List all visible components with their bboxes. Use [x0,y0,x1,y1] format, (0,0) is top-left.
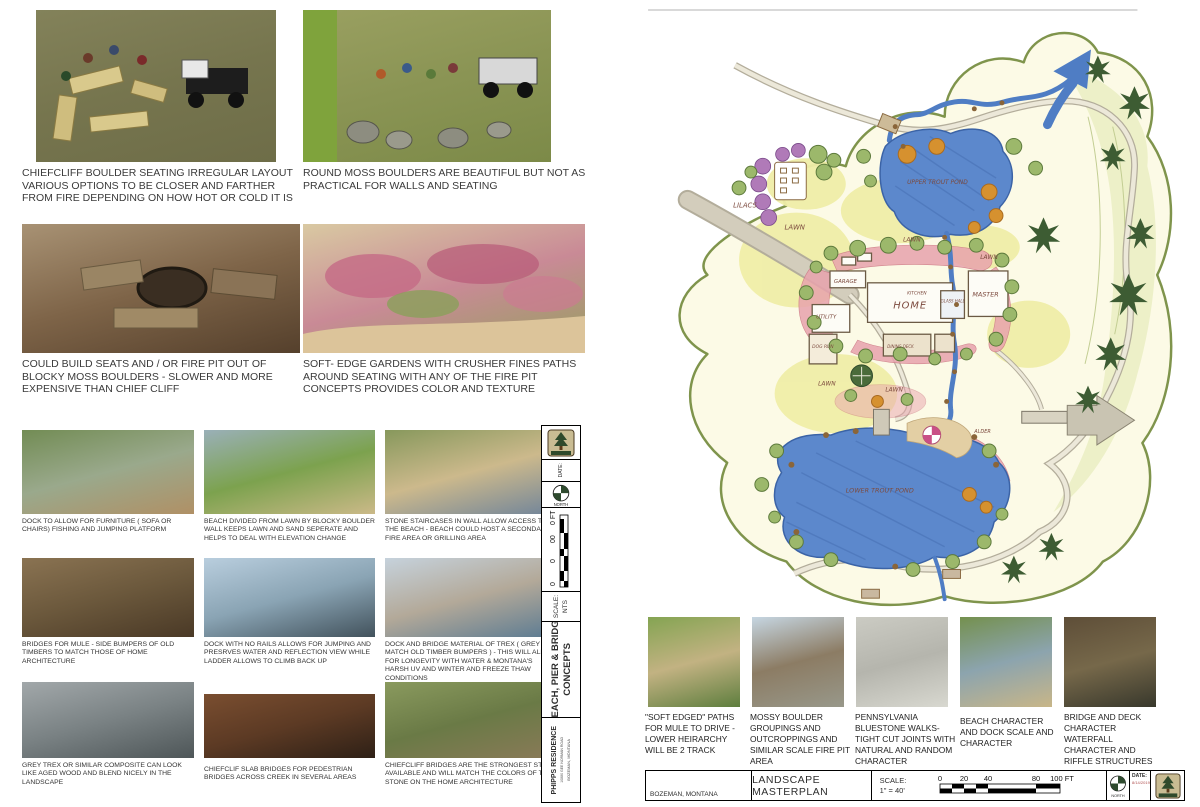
caption-beach-lawn-wall: BEACH DIVIDED FROM LAWN BY BLOCKY BOULDE… [204,518,375,543]
caption-trex-dock: DOCK AND BRIDGE MATERIAL OF TREX ( GREY … [385,641,557,683]
caption-dock-furniture: DOCK TO ALLOW FOR FURNITURE ( SOFA OR CH… [22,518,194,535]
svg-text:80: 80 [1032,774,1040,783]
svg-text:MASTER: MASTER [972,291,998,299]
chiefcliff-bridge-stone-photo [385,682,557,758]
caption-round-moss-boulders: ROUND MOSS BOULDERS ARE BEAUTIFUL BUT NO… [303,167,587,192]
left-titleblock: DATE: NORTH 0 0 00 0 FT SCALE: NTS [541,425,581,803]
right-board: LILACS LAWN LAWN LAWN LAWN LAWN GARAGE H… [600,0,1200,807]
bridge-deck-waterfall-photo [1064,617,1156,707]
firm-logo-box [542,426,580,460]
parked-car [842,257,856,265]
firm-logo-box [1151,771,1184,800]
project-address: 10880 GEE NORMAN ROAD [560,737,564,783]
scale-label: SCALE: [553,595,560,618]
garden-shapes [303,224,585,353]
pier-southeast [1022,411,1067,423]
svg-text:0 FT: 0 FT [550,509,557,524]
sheet-title-box: BEACH, PIER & BRIDGE CONCEPTS [542,622,580,718]
sheet-title-line2: CONCEPTS [562,643,573,696]
dock-no-rails-photo [204,558,375,637]
masterplan-drawing: LILACS LAWN LAWN LAWN LAWN LAWN GARAGE H… [645,8,1185,613]
svg-text:LAWN: LAWN [885,387,903,394]
caption-beach-dock-character: BEACH CHARACTER AND DOCK SCALE AND CHARA… [960,716,1060,749]
project-box: PHIPPS RESIDENCE 10880 GEE NORMAN ROAD B… [542,718,580,802]
svg-text:40: 40 [984,774,992,783]
sketch-seating-shapes [36,10,276,162]
trex-dock-photo [385,558,557,637]
date-box: DATE: 8/14/2019 [1130,771,1151,800]
caption-blocky-moss-fire-pit: COULD BUILD SEATS AND / OR FIRE PIT OUT … [22,358,306,396]
sketch-boulder-shapes [303,10,551,162]
left-board: CHIEFCLIFF BOULDER SEATING IRREGULAR LAY… [0,0,600,807]
caption-mule-bridge: BRIDGES FOR MULE - SIDE BUMPERS OF OLD T… [22,641,194,666]
culvert-bridge [943,570,961,579]
city-label: BOZEMAN, MONTANA [650,791,718,798]
caption-dock-no-rails: DOCK WITH NO RAILS ALLOWS FOR JUMPING AN… [204,641,375,666]
caption-soft-edged-path: "SOFT EDGED" PATHS FOR MULE TO DRIVE - L… [645,712,745,756]
north-arrow-icon: NORTH [550,483,572,507]
scale-bar-horizontal: 0 20 40 80 100 FT [910,773,1078,799]
north-arrow-icon: NORTH [1108,773,1128,799]
sheet-title: LANDSCAPE MASTERPLAN [752,774,871,798]
firm-logo [547,429,575,457]
svg-text:00: 00 [550,535,557,543]
chiefcliff-seating-sketch [36,10,276,162]
svg-text:LAWN: LAWN [903,236,921,243]
round-moss-boulders-sketch [303,10,551,162]
svg-text:20: 20 [960,774,968,783]
caption-soft-edge-gardens: SOFT- EDGE GARDENS WITH CRUSHER FINES PA… [303,358,587,396]
svg-text:HOME: HOME [893,301,927,312]
sheet-title-line1: BEACH, PIER & BRIDGE [550,622,561,718]
soft-edge-gardens-photo [303,224,585,353]
soft-edged-path-photo [648,617,740,707]
scale-label-box: SCALE: NTS [542,592,580,622]
bluestone-walk-photo [856,617,948,707]
date-label: DATE: [558,463,564,477]
svg-text:DOG RUN: DOG RUN [812,344,834,350]
caption-bluestone-walk: PENNSYLVANIA BLUESTONE WALKS- TIGHT CUT … [855,712,957,767]
svg-text:NORTH: NORTH [554,502,569,507]
caption-chiefcliff-seating: CHIEFCLIFF BOULDER SEATING IRREGULAR LAY… [22,167,306,205]
project-city: BOZEMAN, MONTANA [566,739,571,781]
caption-chiefclif-slab-bridge: CHIEFCLIF SLAB BRIDGES FOR PEDESTRIAN BR… [204,766,376,783]
svg-text:NORTH: NORTH [1111,793,1125,797]
svg-text:ALDER: ALDER [973,429,990,435]
right-titleblock: BOZEMAN, MONTANA LANDSCAPE MASTERPLAN SC… [645,770,1185,801]
svg-text:0: 0 [550,582,557,586]
scale-box: SCALE: 1" = 40' 0 20 40 80 100 FT [872,771,1107,800]
dock-furniture-photo [22,430,194,514]
north-box: NORTH [1107,771,1130,800]
labyrinth-fire-pit [851,365,873,387]
sheet-title-box: LANDSCAPE MASTERPLAN [752,771,872,800]
svg-text:UPPER TROUT POND: UPPER TROUT POND [907,179,968,186]
svg-text:LAWN: LAWN [818,381,836,388]
scale-bar-box: 0 0 00 0 FT [542,508,580,592]
caption-stone-staircase: STONE STAIRCASES IN WALL ALLOW ACCESS TO… [385,518,557,543]
caption-bridge-deck-waterfall: BRIDGE AND DECK CHARACTER WATERFALL CHAR… [1064,712,1164,767]
stone-staircase-photo [385,430,557,514]
beach-lawn-wall-photo [204,430,375,514]
fire-pit-shapes [22,224,300,353]
glass-hall [941,291,965,319]
svg-text:0: 0 [550,559,557,563]
svg-text:KITCHEN: KITCHEN [907,291,927,297]
pond-fire-pit [923,426,941,444]
date-label: DATE: [1132,773,1147,779]
scale-value: 1" = 40' [880,786,907,796]
svg-text:LILACS: LILACS [733,202,757,210]
caption-mossy-boulder-firepit: MOSSY BOULDER GROUPINGS AND OUTCROPPINGS… [750,712,852,767]
svg-text:0: 0 [938,774,942,783]
presentation-board: { "page_left": { "concepts": [ {"id":"ch… [0,0,1200,807]
caption-chiefcliff-bridge-stone: CHIEFCLIFF BRIDGES ARE THE STRONGEST STO… [385,762,557,787]
pond-dock [873,409,889,435]
culvert-bridge-2 [862,589,880,598]
blocky-moss-fire-pit-photo [22,224,300,353]
svg-text:DINING DECK: DINING DECK [887,344,914,349]
scale-label: SCALE: [880,776,907,786]
svg-text:UTILITY: UTILITY [816,314,837,320]
svg-text:LAWN: LAWN [785,223,805,231]
svg-text:GLASS HALL: GLASS HALL [941,299,965,304]
mule-bridge-photo [22,558,194,637]
scale-bar-vertical: 0 0 00 0 FT [542,509,580,591]
city-box: BOZEMAN, MONTANA [646,771,752,800]
north-box: NORTH [542,482,580,508]
date-value: 8/14/2019 [1132,780,1150,785]
svg-text:GARAGE: GARAGE [834,279,858,285]
chiefclif-slab-bridge-photo [204,694,375,758]
grey-trex-photo [22,682,194,758]
small-deck [935,334,955,352]
date-box: DATE: [542,460,580,482]
svg-text:LAWN: LAWN [980,254,998,261]
caption-grey-trex: GREY TREX OR SIMILAR COMPOSITE CAN LOOK … [22,762,194,787]
svg-text:100 FT: 100 FT [1050,774,1074,783]
scale-value: NTS [562,600,569,613]
scale-text: SCALE: 1" = 40' [872,776,911,796]
mossy-boulder-firepit-photo [752,617,844,707]
project-name: PHIPPS RESIDENCE [551,726,558,794]
firm-logo [1155,773,1181,799]
timber-corral [775,162,807,200]
beach-dock-character-photo [960,617,1052,707]
svg-text:LOWER TROUT POND: LOWER TROUT POND [846,486,914,494]
